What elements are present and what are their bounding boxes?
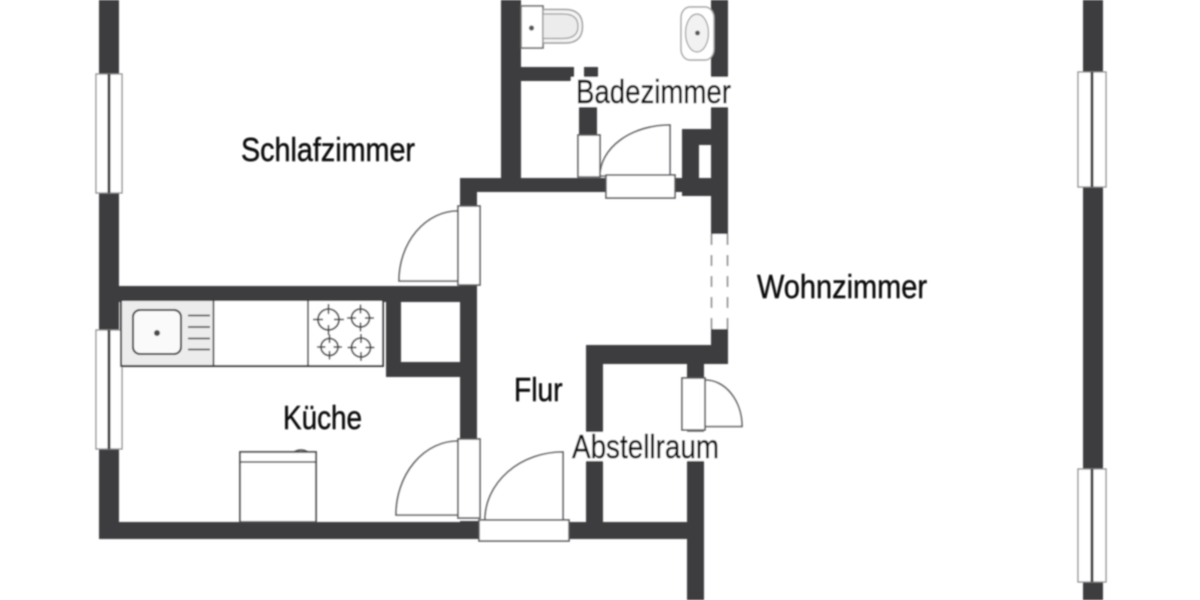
svg-text:Flur: Flur	[514, 371, 563, 408]
svg-text:Badezimmer: Badezimmer	[576, 73, 731, 110]
svg-text:Schlafzimmer: Schlafzimmer	[241, 131, 415, 168]
svg-text:Abstellraum: Abstellraum	[572, 428, 719, 465]
svg-text:Küche: Küche	[283, 399, 362, 436]
svg-text:Wohnzimmer: Wohnzimmer	[757, 268, 927, 305]
